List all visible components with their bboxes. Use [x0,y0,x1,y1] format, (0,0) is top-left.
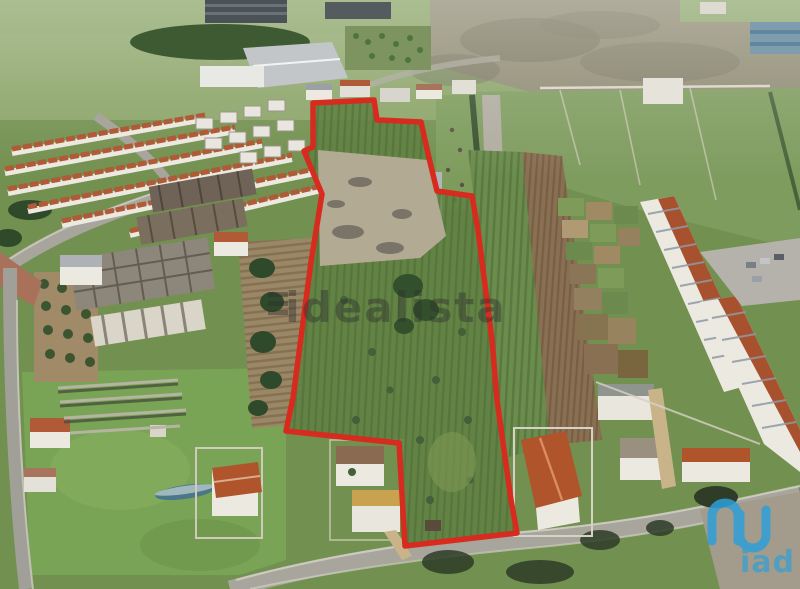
shed [425,520,441,531]
layer-watermark: idealista [268,283,507,332]
worn-grass [428,432,476,492]
blue-building-stripe [750,42,800,46]
office-building [200,66,264,87]
factory-dark2 [325,2,391,19]
blue-building-stripe [750,30,800,34]
aerial-photo-canvas: idealista iad [0,0,800,589]
aerial-photo: idealista iad [0,0,800,589]
meadow-patch [140,519,260,571]
factory-dark [205,0,287,23]
factory-stripe [205,12,287,15]
iad-logo-text: iad [740,545,795,580]
small-house-top [700,2,726,14]
idealista-watermark: idealista [285,283,507,332]
white-estate [643,78,683,104]
factory-stripe [205,4,287,7]
blue-industrial-building [750,22,800,54]
